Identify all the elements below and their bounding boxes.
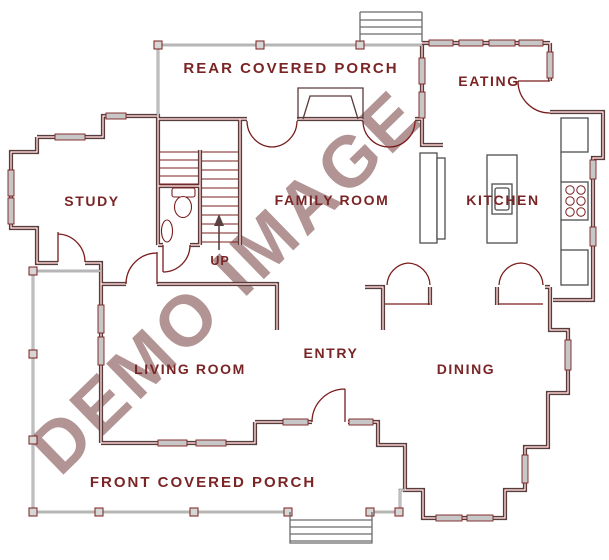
peninsula-counter <box>420 153 437 243</box>
sink <box>162 220 173 242</box>
bathroom-fixtures <box>162 188 196 242</box>
room-label-study: STUDY <box>64 193 119 209</box>
room-label-rear-covered-porch: REAR COVERED PORCH <box>183 60 398 77</box>
room-label-living-room: LIVING ROOM <box>134 361 246 377</box>
peninsula-counter-edge <box>437 158 445 239</box>
room-label-kitchen: KITCHEN <box>466 192 539 208</box>
front-steps <box>290 512 372 543</box>
toilet-bowl <box>175 197 192 218</box>
floor-plan-image: DEMO IMAGE <box>0 0 609 560</box>
room-label-dining: DINING <box>437 361 496 377</box>
room-label-family-room: FAMILY ROOM <box>275 192 390 208</box>
room-label-entry: ENTRY <box>304 345 359 361</box>
counter-lower <box>561 250 588 285</box>
room-label-eating: EATING <box>458 73 519 89</box>
room-label-front-covered-porch: FRONT COVERED PORCH <box>90 474 316 491</box>
floor-plan-page: DEMO IMAGE <box>0 0 609 560</box>
counter-upper <box>561 118 588 152</box>
toilet-tank <box>172 188 195 197</box>
stairs-up-label: UP <box>210 254 229 268</box>
rear-steps <box>360 12 422 42</box>
